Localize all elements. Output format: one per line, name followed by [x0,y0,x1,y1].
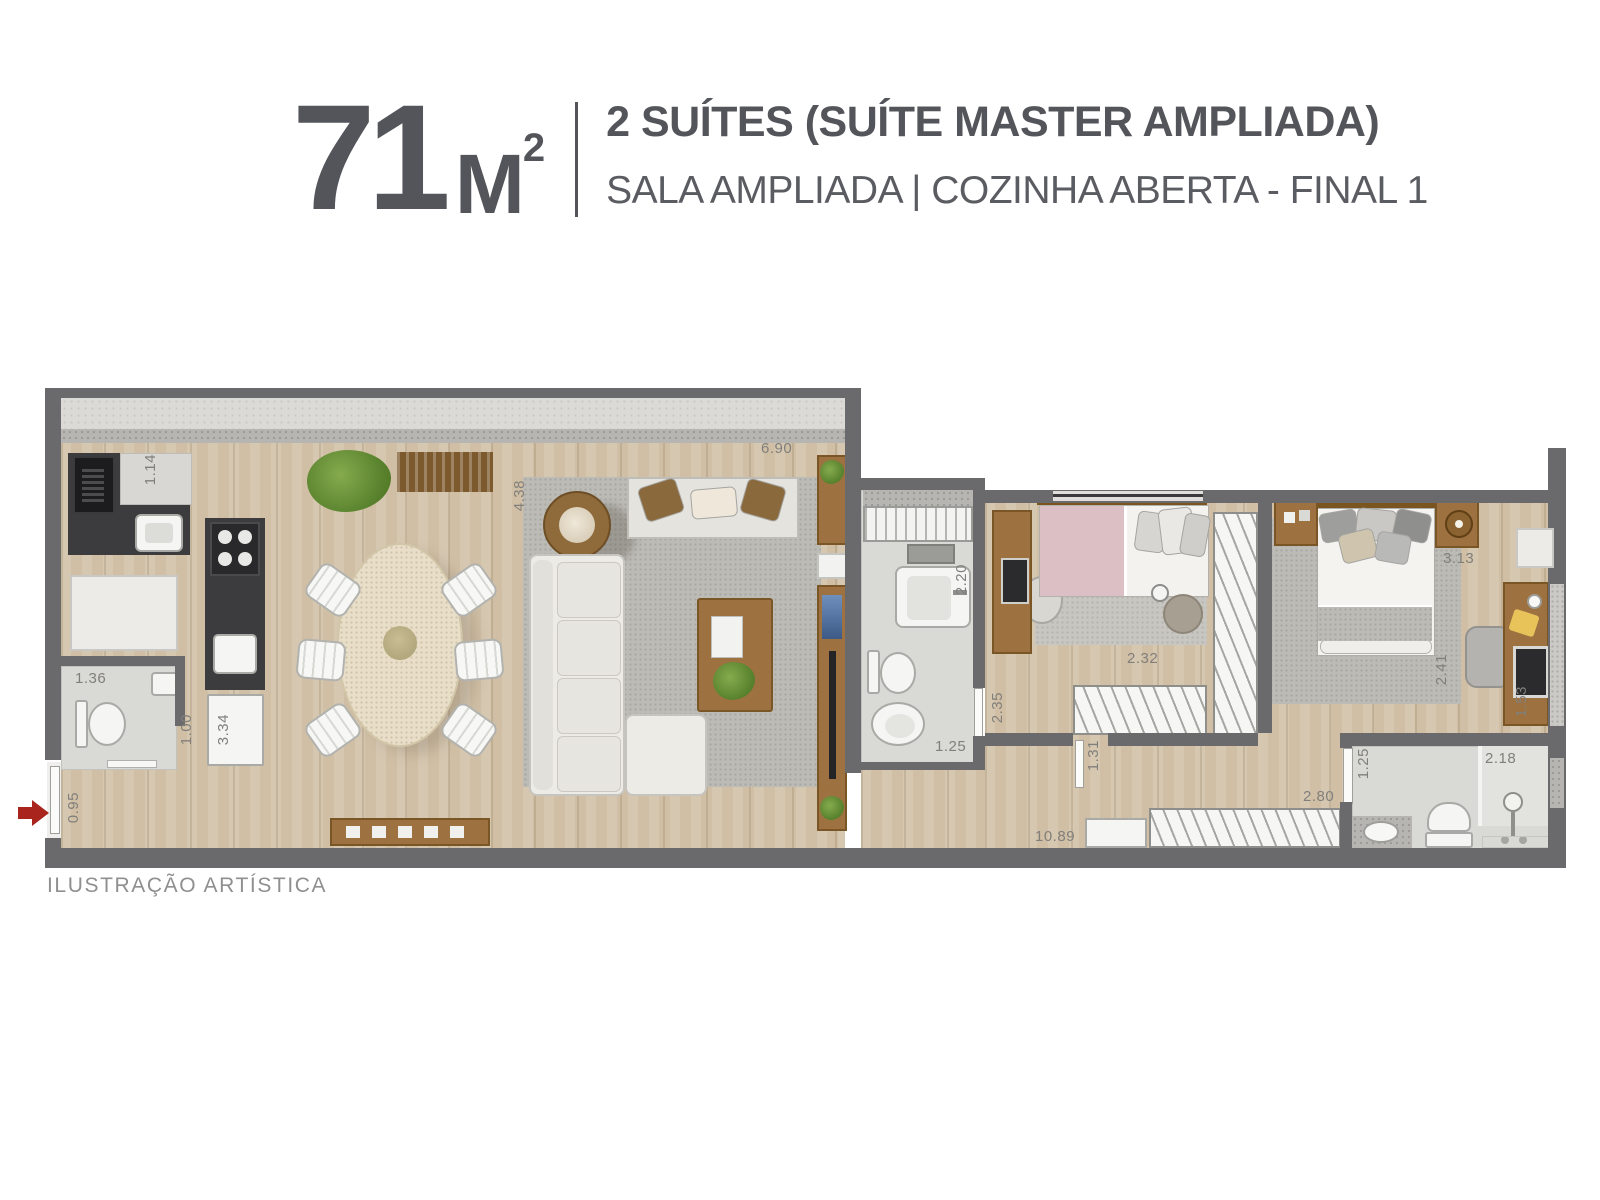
title-line1: 2 SUÍTES (SUÍTE MASTER AMPLIADA) [606,98,1428,147]
bath1-door [974,688,983,738]
header: 71 M2 2 SUÍTES (SUÍTE MASTER AMPLIADA) S… [292,96,1428,219]
suite1-closet [1213,512,1258,736]
bath1-sink [871,702,925,746]
balcony-door-track [61,429,845,443]
wall [1108,733,1258,746]
shower-pipe [1511,812,1515,836]
deck-slats [397,452,493,492]
laundry-counter [863,490,973,506]
monitor [1001,558,1029,604]
shower-divider [1478,746,1482,826]
entry-door [50,766,60,834]
lavabo-toilet [88,702,126,746]
bath1-toilet [880,652,916,694]
dim-lavabo-depth: 1.00 [178,714,195,745]
dim-kitchen-counter: 1.14 [142,454,159,485]
master-window [1550,584,1564,726]
bath2-door [1343,748,1353,804]
wall [973,478,985,688]
kitchen-sink [135,514,183,552]
titles: 2 SUÍTES (SUÍTE MASTER AMPLIADA) SALA AM… [606,96,1428,219]
area-sup: 2 [523,126,545,170]
title-line2: SALA AMPLIADA | COZINHA ABERTA - FINAL 1 [606,169,1428,213]
dim-bath1-width: 1.25 [935,738,966,755]
dining-chair [295,638,346,682]
artwork [822,595,842,639]
dim-living-width: 6.90 [761,440,792,457]
wall [1258,503,1272,733]
dim-bath2-shower: 2.18 [1485,750,1516,767]
dim-master-hall: 2.80 [1303,788,1334,805]
suite1-closet-low [1073,685,1207,735]
dim-closet1-width: 2.32 [1127,650,1158,667]
sofa-chaise [625,714,707,796]
dining-chair [453,638,504,682]
wall [45,388,861,398]
towel-rack [1550,758,1564,808]
shower-head [1503,792,1523,812]
dim-corridor-length: 10.89 [1035,828,1075,845]
area-unit: M2 [455,132,545,219]
master-bed [1317,508,1435,656]
bath-mat [1482,836,1550,848]
island-sink [213,634,257,674]
balcony-floor [61,398,845,429]
disclaimer: ILUSTRAÇÃO ARTÍSTICA [47,874,327,898]
drying-rack [863,506,973,542]
dim-master-width: 3.13 [1443,550,1474,567]
wall [985,733,1073,746]
stove [210,522,260,576]
dim-entry-width: 0.95 [65,792,82,823]
dim-bath1-depth: 2.35 [989,692,1006,723]
pillow [690,486,738,520]
tv-console [817,585,847,831]
floor-lamp [1151,584,1169,602]
page: { "header": { "area_value": "71", "area_… [0,0,1600,1200]
dim-master-desk: 1.53 [1513,686,1530,717]
washing-machine [907,544,955,564]
wall [1352,733,1548,746]
bath2-toilet-tank [1425,832,1473,848]
bath2-counter [1352,816,1412,848]
dim-lavabo-width: 1.36 [75,670,106,687]
side-table [543,491,611,559]
wall [45,388,61,760]
lavabo-door [107,760,157,768]
wall [45,848,1566,868]
bath1-toilet-tank [867,650,880,694]
wall [861,762,985,770]
wall [861,478,985,490]
wall [845,388,861,773]
hall-floor [861,770,985,848]
dim-master-depth: 2.41 [1433,654,1450,685]
header-divider [575,102,578,217]
lavabo-toilet-tank [75,700,88,748]
floor-plan: 1.14 4.38 6.90 1.36 1.00 3.34 0.95 2.20 … [45,388,1566,868]
nightstand [1435,500,1479,548]
hall-cabinet [1085,818,1147,848]
suite1-desk [992,510,1032,654]
suite1-stool [1163,594,1203,634]
bath2-toilet [1427,802,1471,832]
nightstand [1274,500,1318,546]
dim-bath2-width: 1.25 [1355,748,1372,779]
hall-closet [1149,808,1341,848]
dim-kitchen-island: 3.34 [215,714,232,745]
desk-lamp [1508,609,1540,638]
sofa [529,554,625,796]
suite1-window [1053,491,1203,501]
wall [61,656,185,666]
table-centerpiece [383,626,417,660]
kitchen-counter-west [70,575,178,651]
dim-laundry-width: 2.20 [953,564,970,595]
entry-arrow-icon [18,800,50,826]
air-conditioner [1516,528,1554,568]
area-value: 71 [292,96,443,219]
column [817,553,847,579]
suite1-bed [1039,505,1209,597]
fridge [73,456,115,514]
dim-hall-door: 1.31 [1085,740,1102,771]
area-figure: 71 M2 [292,96,545,219]
tv [829,651,836,779]
sideboard [330,818,490,846]
wall [1340,733,1352,748]
dim-living-depth: 4.38 [511,480,528,511]
suite1-door [1075,740,1084,788]
wall [1340,802,1352,868]
